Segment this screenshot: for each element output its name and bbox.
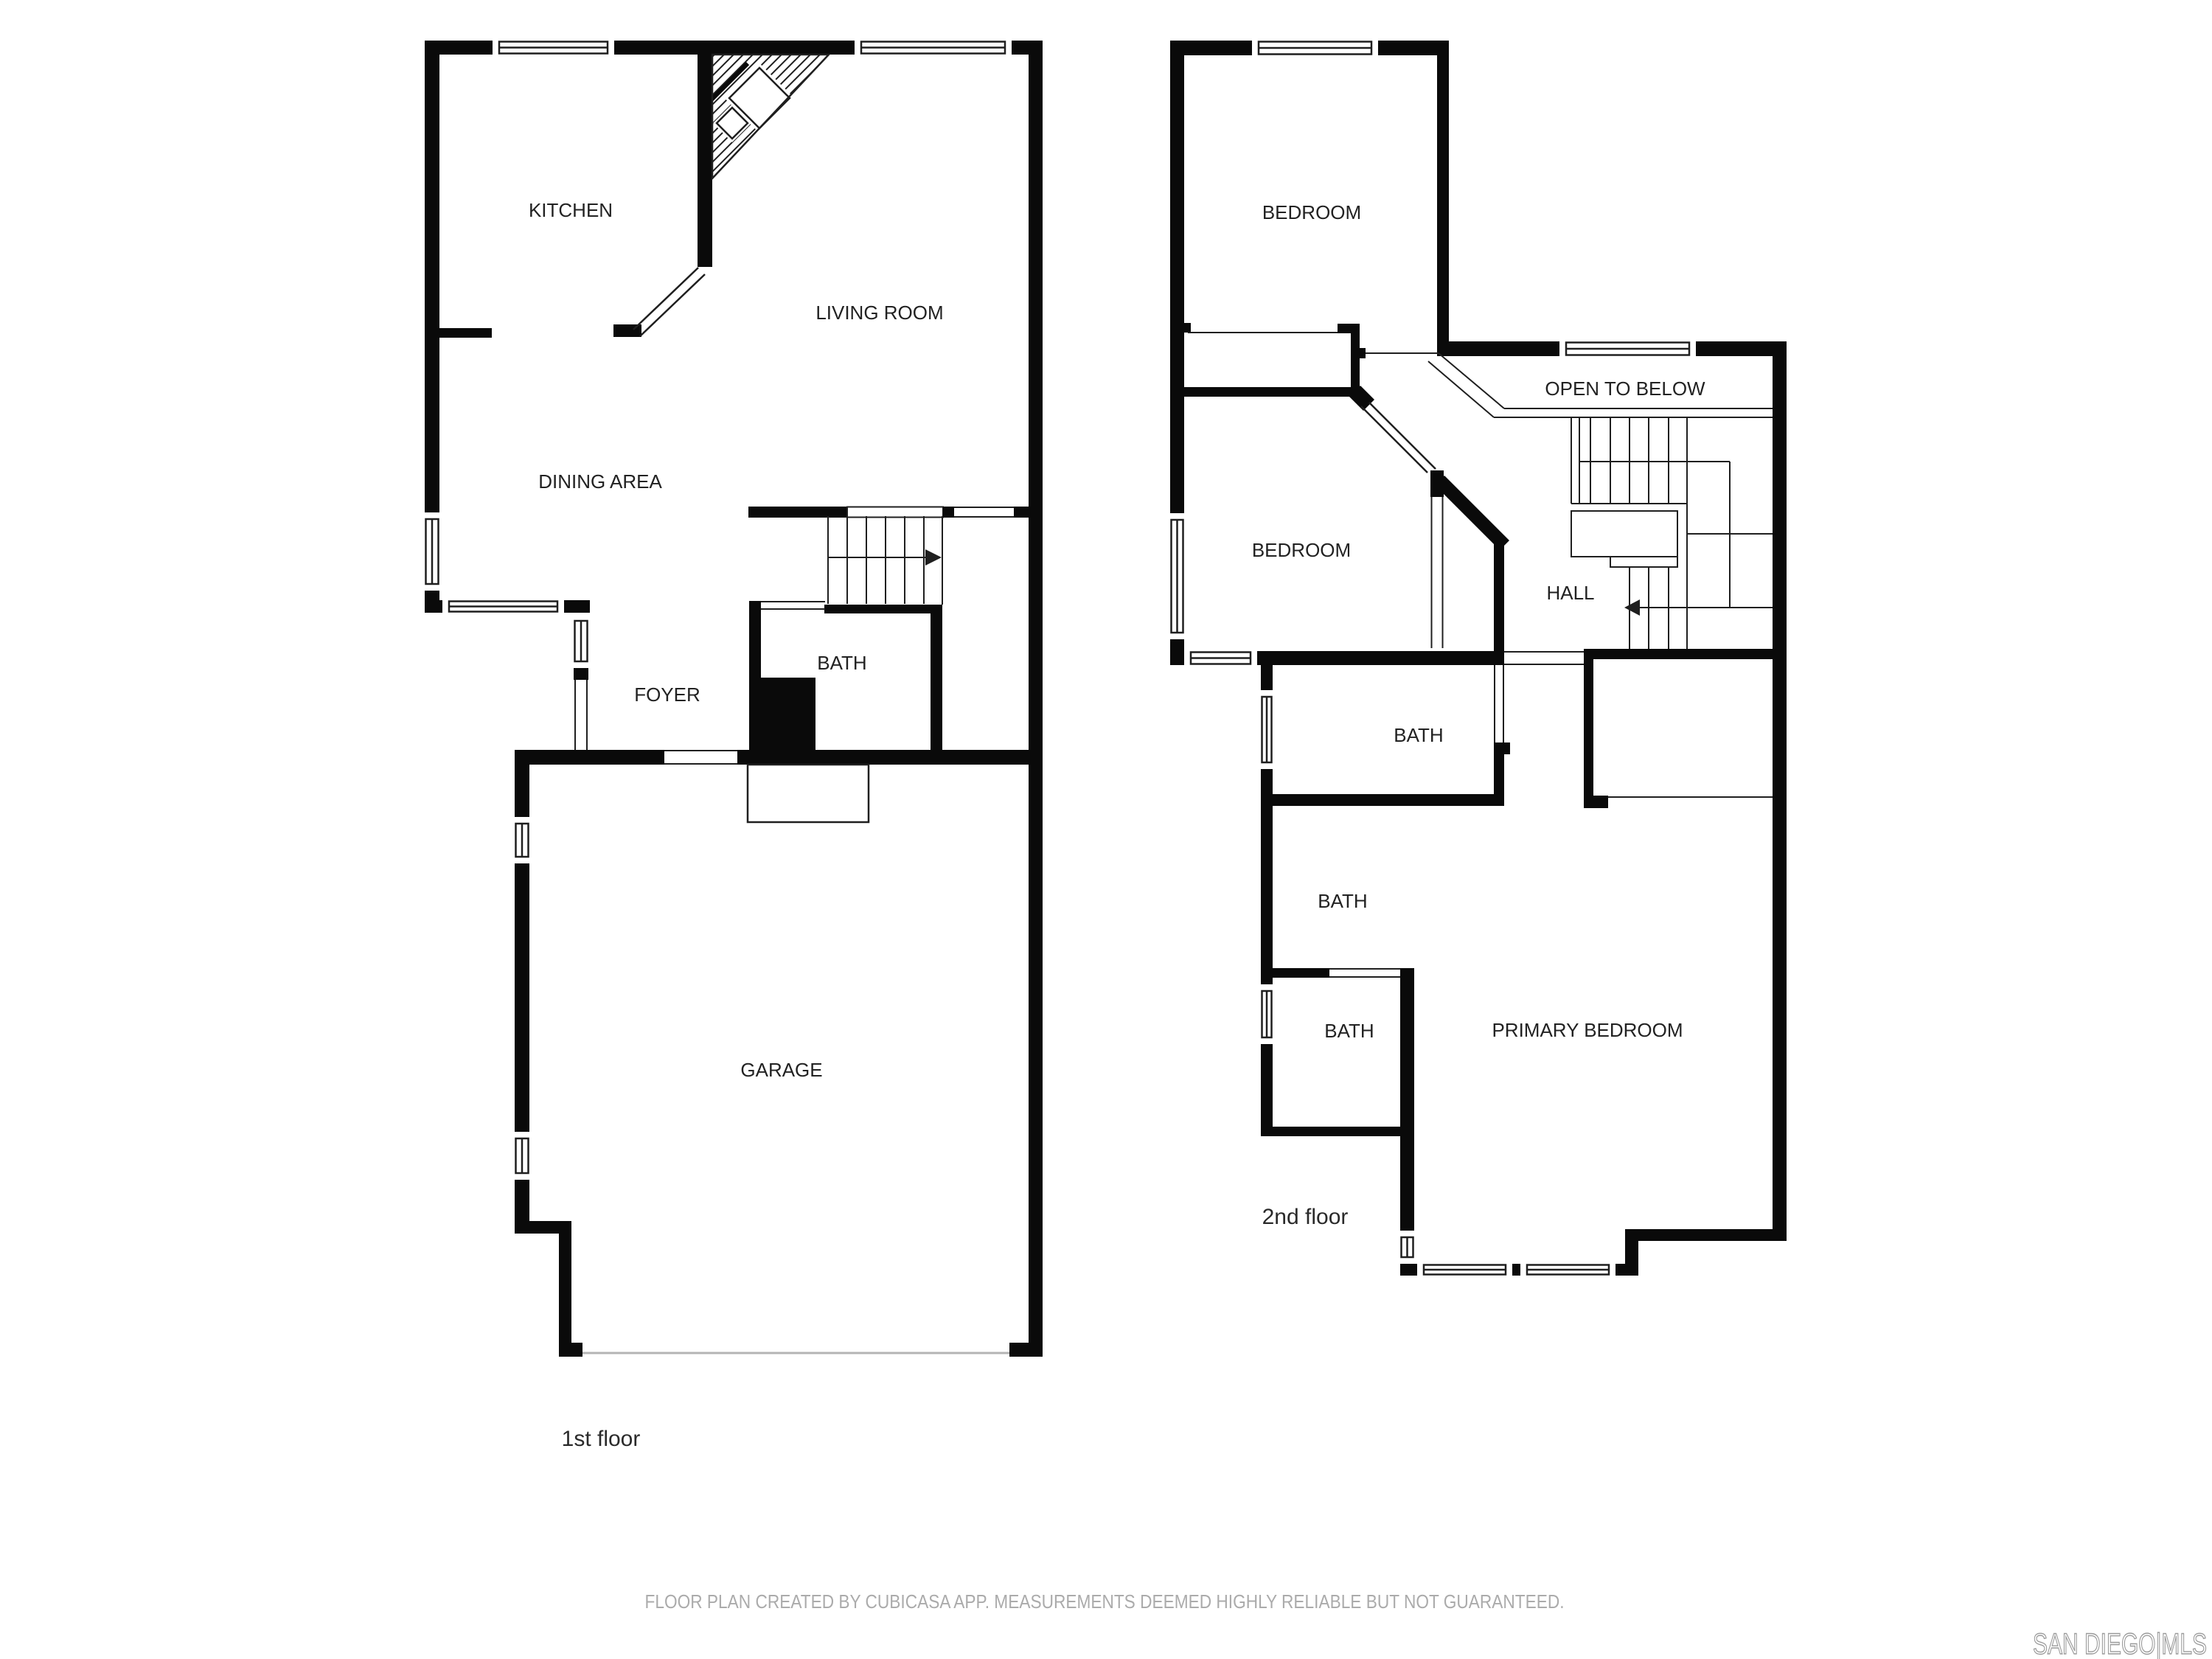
svg-text:PRIMARY BEDROOM: PRIMARY BEDROOM — [1492, 1019, 1683, 1041]
svg-text:FOYER: FOYER — [634, 684, 700, 706]
svg-text:BATH: BATH — [817, 652, 866, 674]
svg-text:HALL: HALL — [1546, 582, 1594, 604]
svg-text:BATH: BATH — [1394, 724, 1443, 746]
svg-text:SAN DIEGO|MLS: SAN DIEGO|MLS — [2033, 1628, 2207, 1659]
svg-text:FLOOR PLAN CREATED BY CUBICASA: FLOOR PLAN CREATED BY CUBICASA APP. MEAS… — [645, 1590, 1565, 1613]
svg-text:DINING AREA: DINING AREA — [538, 470, 662, 493]
svg-text:KITCHEN: KITCHEN — [529, 199, 613, 221]
svg-text:BEDROOM: BEDROOM — [1262, 201, 1361, 223]
svg-text:1st floor: 1st floor — [562, 1427, 641, 1451]
svg-text:OPEN TO BELOW: OPEN TO BELOW — [1545, 378, 1705, 400]
svg-text:BEDROOM: BEDROOM — [1252, 539, 1351, 561]
svg-text:2nd floor: 2nd floor — [1262, 1205, 1349, 1229]
svg-text:LIVING ROOM: LIVING ROOM — [815, 302, 943, 324]
svg-text:GARAGE: GARAGE — [740, 1059, 822, 1081]
svg-text:BATH: BATH — [1318, 890, 1367, 912]
svg-text:BATH: BATH — [1324, 1020, 1374, 1042]
